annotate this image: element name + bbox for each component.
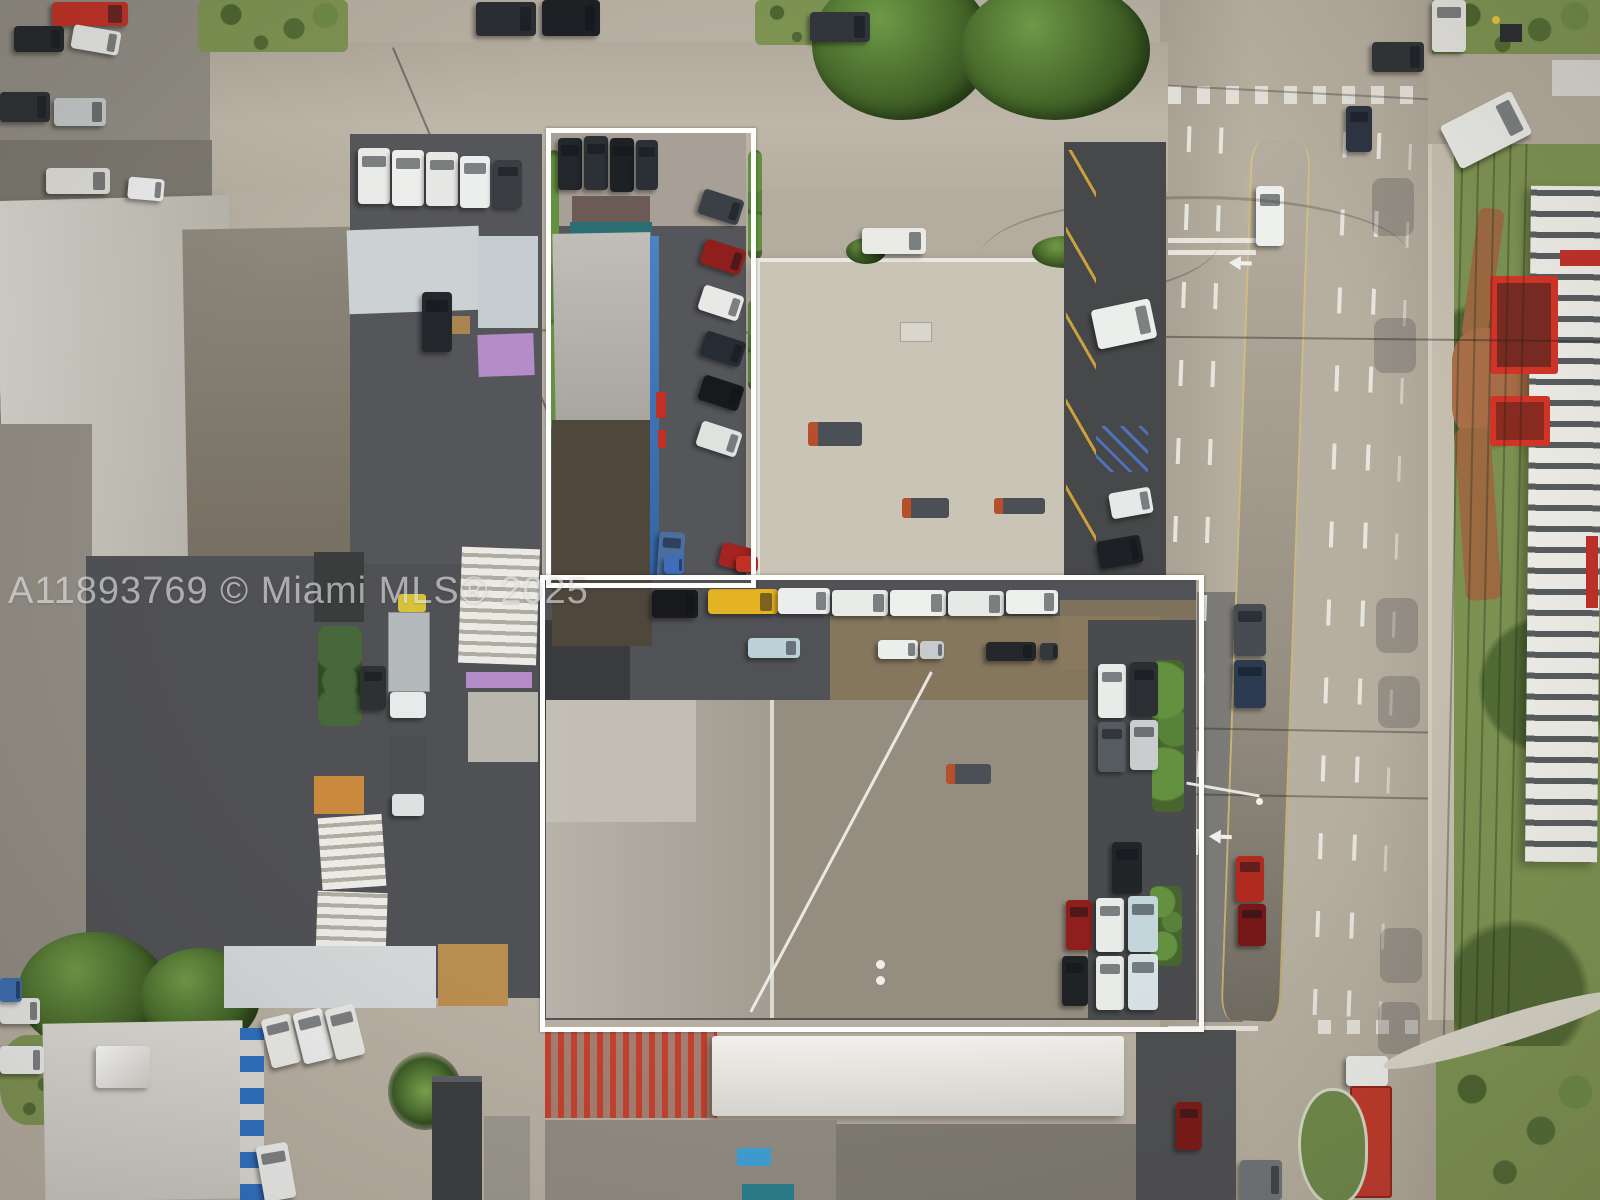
car xyxy=(1238,904,1266,946)
bottom-roof xyxy=(836,1124,1136,1200)
car xyxy=(0,1046,44,1074)
car xyxy=(1234,604,1266,656)
car xyxy=(52,2,128,26)
rooftop-unit xyxy=(900,322,932,342)
purple-material-stack xyxy=(466,672,532,688)
turn-arrow-icon xyxy=(1209,829,1221,843)
car xyxy=(54,98,106,126)
car xyxy=(1176,1102,1202,1150)
parking-lines xyxy=(1066,150,1096,570)
box-truck-cargo xyxy=(390,736,426,792)
van xyxy=(360,666,386,710)
streetlight-lamp xyxy=(1256,798,1263,805)
car xyxy=(542,0,600,36)
car-shadow xyxy=(1374,318,1416,373)
blue-tarp xyxy=(737,1148,771,1166)
signal-box xyxy=(1500,24,1522,42)
crate-stack xyxy=(347,226,482,315)
wood-crates xyxy=(314,776,364,814)
car-shadow xyxy=(1378,676,1420,728)
metal-racks xyxy=(468,692,538,762)
car xyxy=(1240,1160,1282,1200)
van xyxy=(127,176,165,201)
neighbor-warehouse-roof xyxy=(756,258,1072,588)
truck xyxy=(862,228,926,254)
van xyxy=(494,160,522,208)
wood-crates xyxy=(438,944,508,1006)
van xyxy=(460,156,490,208)
mls-watermark: A11893769 © Miami MLS® 2025 xyxy=(8,570,589,613)
van xyxy=(426,152,458,206)
red-racking xyxy=(545,1030,717,1118)
teal-structure xyxy=(742,1184,794,1200)
parcel-outline-north xyxy=(546,128,756,588)
truck-cab xyxy=(1346,1056,1388,1086)
grass-corner xyxy=(1436,1046,1600,1200)
car xyxy=(1346,106,1372,152)
truck-trailer xyxy=(46,168,110,194)
pallet xyxy=(452,316,470,334)
car xyxy=(0,978,22,1002)
grass-island xyxy=(1298,1088,1368,1200)
roof-hatch xyxy=(808,422,862,446)
purple-material-stack xyxy=(477,333,534,377)
truck-trailer xyxy=(484,1116,530,1200)
white-canopy xyxy=(712,1036,1124,1116)
canopy-small xyxy=(1552,60,1600,96)
truck-trailer xyxy=(432,1076,482,1200)
car-shadow xyxy=(1380,928,1422,983)
van xyxy=(392,150,424,206)
green-equipment xyxy=(318,626,362,726)
plank-stack xyxy=(318,814,387,890)
roof-hatch xyxy=(994,498,1045,514)
box-truck-cargo xyxy=(388,612,430,692)
car xyxy=(422,292,452,352)
handicap-markings xyxy=(1096,426,1148,472)
gray-building xyxy=(0,424,92,984)
car xyxy=(476,2,536,36)
crate-stack xyxy=(224,946,436,1008)
red-sign xyxy=(1586,536,1598,608)
car xyxy=(1372,42,1424,72)
car-shadow xyxy=(1376,598,1418,653)
car xyxy=(1234,660,1266,708)
crate-stack xyxy=(478,236,538,328)
car xyxy=(1432,0,1466,52)
car xyxy=(810,12,870,42)
box-truck-cab xyxy=(392,794,424,816)
van xyxy=(358,148,390,204)
aerial-photo: A11893769 © Miami MLS® 2025 xyxy=(0,0,1600,1200)
grass-patch xyxy=(198,0,348,52)
parcel-outline-south xyxy=(540,575,1204,1032)
white-tent xyxy=(96,1046,150,1088)
car xyxy=(14,26,64,52)
box-truck-cab xyxy=(390,692,426,718)
car xyxy=(0,92,50,122)
car xyxy=(1236,856,1264,902)
signal-light-icon xyxy=(1492,16,1500,24)
turn-arrow-stem xyxy=(1221,835,1232,839)
red-band xyxy=(1560,250,1600,266)
roof-hatch xyxy=(902,498,949,518)
